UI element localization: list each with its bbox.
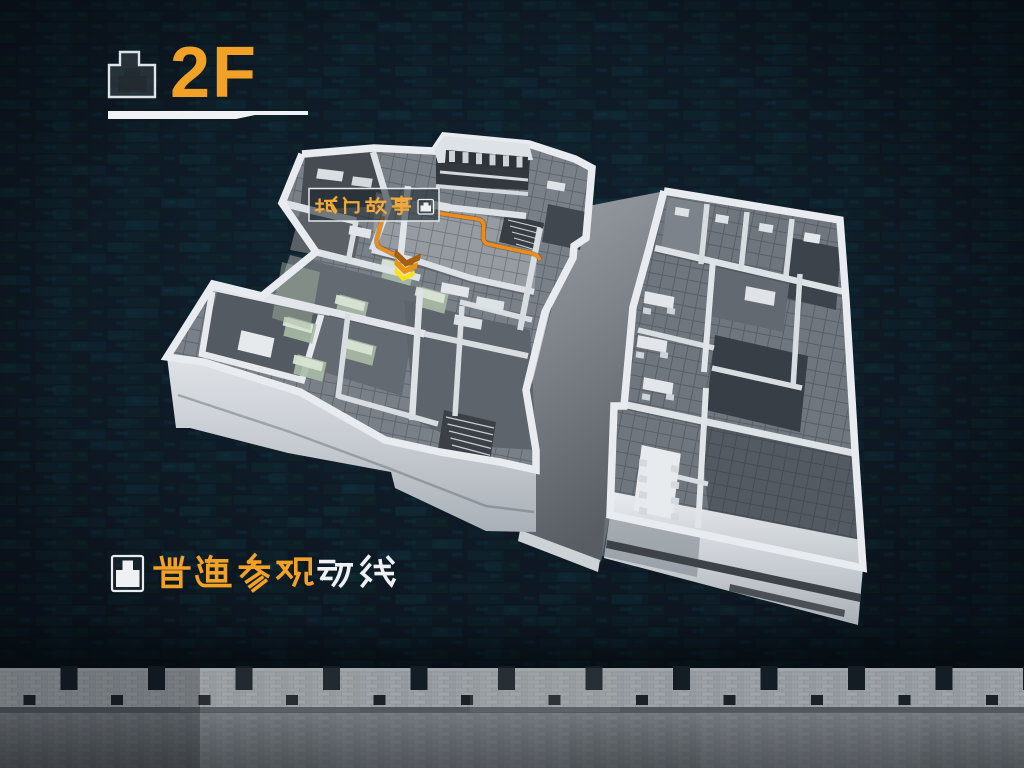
- svg-text:2F: 2F: [170, 33, 258, 113]
